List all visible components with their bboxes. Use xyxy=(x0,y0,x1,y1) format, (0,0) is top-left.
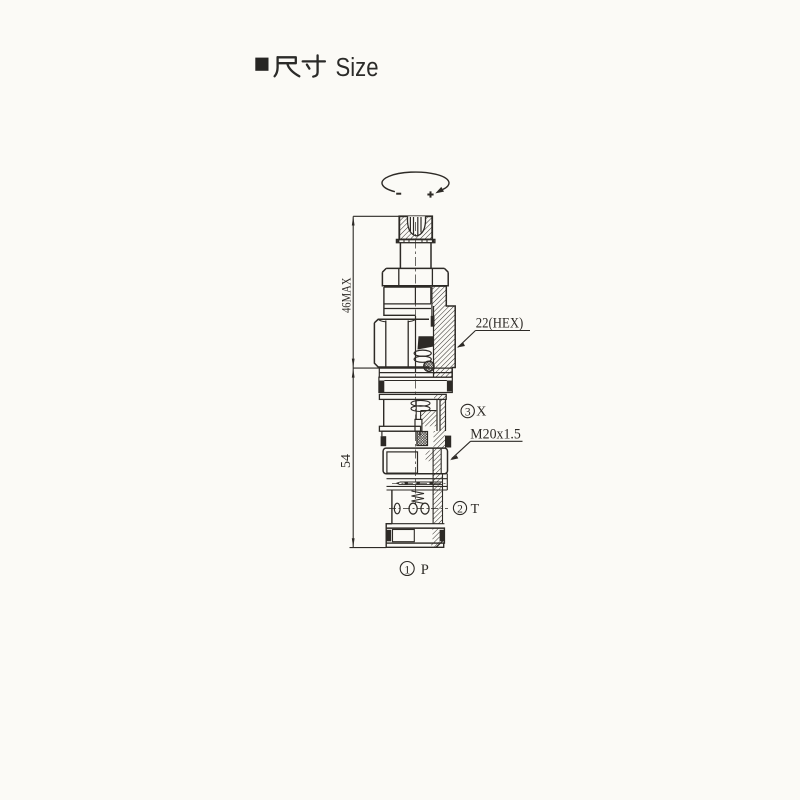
svg-text:Size: Size xyxy=(336,54,379,82)
svg-text:46MAX: 46MAX xyxy=(340,278,354,314)
svg-text:X: X xyxy=(476,405,486,420)
svg-text:2: 2 xyxy=(457,504,463,516)
svg-text:3: 3 xyxy=(465,407,471,419)
svg-text:1: 1 xyxy=(404,562,410,576)
svg-text:M20x1.5: M20x1.5 xyxy=(470,426,521,442)
svg-text:54: 54 xyxy=(339,454,354,468)
svg-text:T: T xyxy=(471,502,480,517)
svg-text:22(HEX): 22(HEX) xyxy=(476,315,524,331)
svg-text:P: P xyxy=(421,562,429,578)
